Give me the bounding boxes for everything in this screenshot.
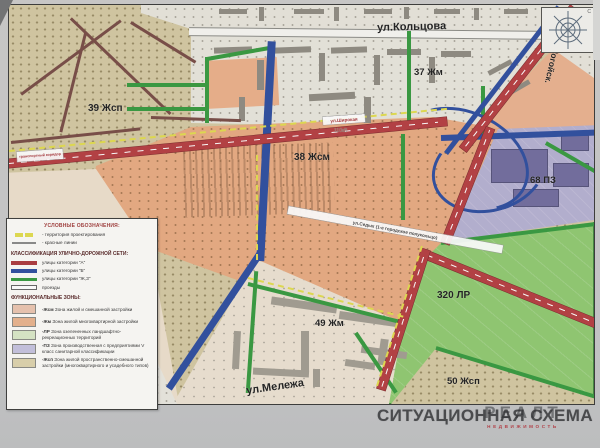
legend-item-label: - красные линии <box>42 240 77 246</box>
legend-roads-header: КЛАССИФИКАЦИЯ УЛИЧНО-ДОРОЖНОЙ СЕТИ: <box>11 251 153 257</box>
legend-item-label: -Жсм Зона жилой и смешанной застройки <box>42 307 132 313</box>
photo-paper-sheet: ул.Кольцова ул.Широкая ул.Седых (1-е гор… <box>0 0 600 448</box>
building <box>334 7 339 21</box>
legend-item-label: - территория проектирования <box>42 232 105 238</box>
zone-desc: Зона жилой пространственно-смешанной зас… <box>42 357 149 368</box>
legend-item-label: проезды <box>42 285 60 291</box>
building <box>259 7 264 21</box>
zone-label-320: 320 ЛР <box>437 290 470 301</box>
zone-label-39: 39 Жсп <box>88 103 123 114</box>
building <box>331 46 367 53</box>
zone-label-50: 50 Жсп <box>447 376 480 387</box>
zone-desc: Зона озелененных ландшафтно-рекреационны… <box>42 329 121 340</box>
legend-item-label: -Жсп Зона жилой пространственно-смешанно… <box>42 357 153 368</box>
compass-north-label: С <box>587 9 591 15</box>
building <box>219 9 247 14</box>
legend-zone-pz: -ПЗ Зона производственная с предприятиям… <box>11 343 153 354</box>
legend-zone-lr: -ЛР Зона озелененных ландшафтно-рекреаци… <box>11 329 153 340</box>
legend-road-class-drive: проезды <box>11 285 153 291</box>
compass-rose: С <box>541 7 595 53</box>
building <box>257 60 264 90</box>
zone-desc: Зона жилой и смешанной застройки <box>55 307 132 312</box>
zone-code: -ЛР <box>42 329 50 334</box>
building <box>313 369 320 387</box>
industrial-building <box>561 135 589 151</box>
legend-zone-zhsm: -Жсм Зона жилой и смешанной застройки <box>11 304 153 314</box>
road-drive-swatch <box>11 285 37 290</box>
legend-item-label: -Жм Зона жилой многоквартирной застройки <box>42 319 138 325</box>
road-a-swatch <box>11 261 37 265</box>
legend-item-label: -ПЗ Зона производственная с предприятиям… <box>42 343 153 354</box>
project-boundary-dash <box>256 155 258 260</box>
territory-swatch <box>11 233 37 237</box>
zone-label-38: 38 Жсм <box>294 152 330 163</box>
legend-zone-zhm: -Жм Зона жилой многоквартирной застройки <box>11 317 153 327</box>
redlines-swatch <box>11 242 37 244</box>
zone-pz-swatch <box>11 344 37 354</box>
zone-zhm-swatch <box>11 317 37 327</box>
building <box>364 9 392 14</box>
building <box>434 9 460 14</box>
legend-road-class-a: улицы категории "А" <box>11 260 153 266</box>
street-label-kolcova: ул.Кольцова <box>377 20 446 34</box>
building <box>504 9 528 14</box>
legend-zone-zhsp: -Жсп Зона жилой пространственно-смешанно… <box>11 357 153 368</box>
legend-road-class-b: улицы категории "Б" <box>11 268 153 274</box>
road-b-swatch <box>11 269 37 273</box>
zone-label-49: 49 Жм <box>315 318 344 329</box>
building <box>387 49 421 55</box>
building <box>319 53 325 81</box>
legend-symbols-header: УСЛОВНЫЕ ОБОЗНАЧЕНИЯ: <box>11 223 153 229</box>
legend-zones-header: ФУНКЦИОНАЛЬНЫЕ ЗОНЫ: <box>11 295 153 301</box>
zone-code: -Жсп <box>42 357 53 362</box>
photo-corner-shadow <box>0 0 13 26</box>
building <box>364 97 371 123</box>
zone-zhsp-swatch <box>11 358 37 368</box>
building <box>441 51 471 57</box>
zone-code: -ПЗ <box>42 343 50 348</box>
legend-item-label: улицы категории "Б" <box>42 268 85 274</box>
building <box>294 9 324 14</box>
compass-star-icon <box>542 8 594 52</box>
zone-code: -Жм <box>42 319 51 324</box>
legend-item-territory: - территория проектирования <box>11 232 153 238</box>
green-road <box>205 57 209 123</box>
legend-road-class-zh: улицы категории "Ж,З" <box>11 276 153 282</box>
building <box>301 331 309 373</box>
legend-item-label: улицы категории "А" <box>42 260 85 266</box>
building <box>474 8 479 20</box>
legend-item-label: улицы категории "Ж,З" <box>42 276 90 282</box>
paper-edge <box>593 0 600 60</box>
legend-panel: УСЛОВНЫЕ ОБОЗНАЧЕНИЯ: - территория проек… <box>6 218 158 410</box>
legend-item-redlines: - красные линии <box>11 240 153 246</box>
sheet-title: СИТУАЦИОННАЯ СХЕМА <box>0 406 593 426</box>
zone-label-37: 37 Жм <box>414 67 443 78</box>
zone-code: -Жсм <box>42 307 54 312</box>
building <box>404 7 409 19</box>
zone-lr-swatch <box>11 330 37 340</box>
road-zh-swatch <box>11 278 37 282</box>
green-road <box>127 83 207 87</box>
green-road <box>127 107 209 111</box>
building <box>374 55 380 85</box>
green-road <box>407 31 411 123</box>
zone-desc: Зона производственная с предприятиями V … <box>42 343 144 354</box>
legend-item-label: -ЛР Зона озелененных ландшафтно-рекреаци… <box>42 329 153 340</box>
powerline-label: 110кВ <box>334 128 348 134</box>
zone-zhsm-swatch <box>11 304 37 314</box>
zone-desc: Зона жилой многоквартирной застройки <box>52 319 138 324</box>
zone-label-68: 68 ПЗ <box>530 175 556 186</box>
building <box>239 97 245 121</box>
